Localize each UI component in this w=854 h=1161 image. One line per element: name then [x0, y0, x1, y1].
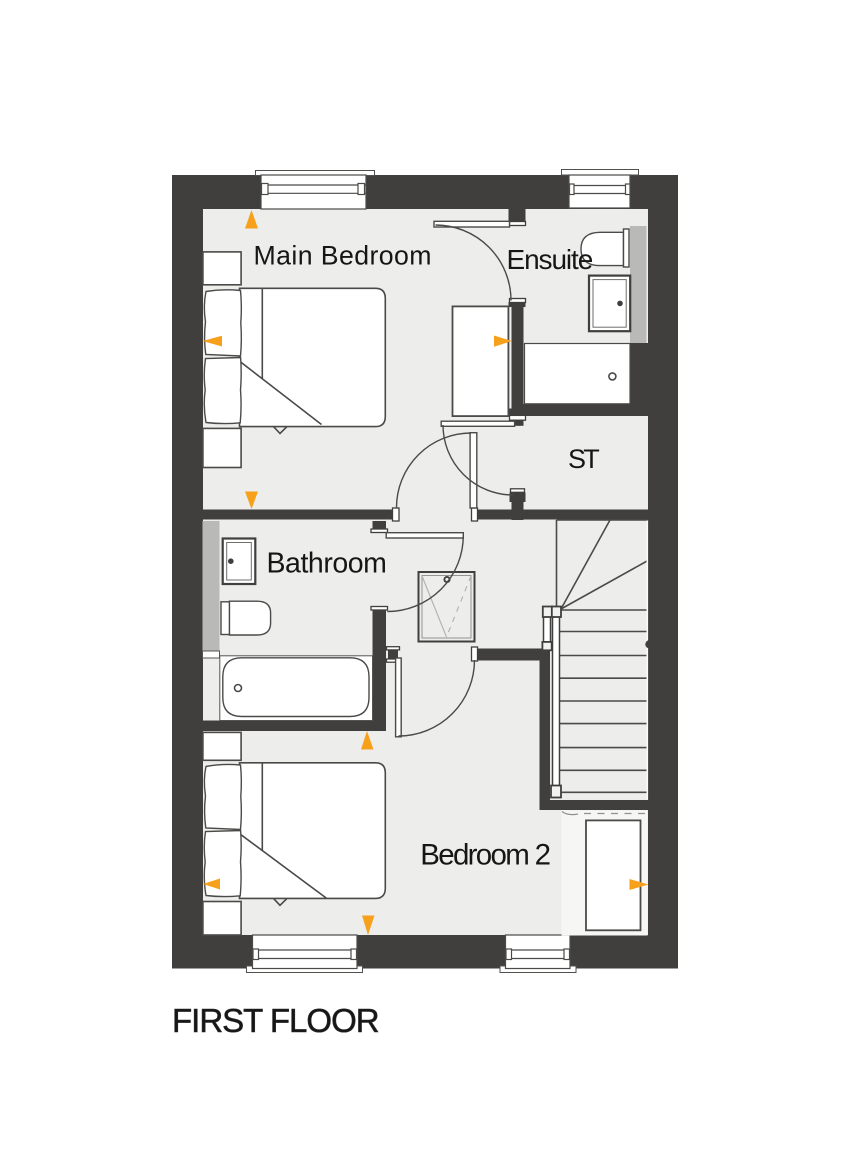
svg-text:ST: ST [568, 444, 599, 474]
svg-text:Bedroom 2: Bedroom 2 [420, 839, 549, 872]
svg-text:Ensuite: Ensuite [507, 244, 593, 275]
svg-text:Main Bedroom: Main Bedroom [254, 241, 432, 271]
svg-text:FIRST FLOOR: FIRST FLOOR [172, 1002, 379, 1039]
svg-text:Bathroom: Bathroom [267, 547, 387, 579]
